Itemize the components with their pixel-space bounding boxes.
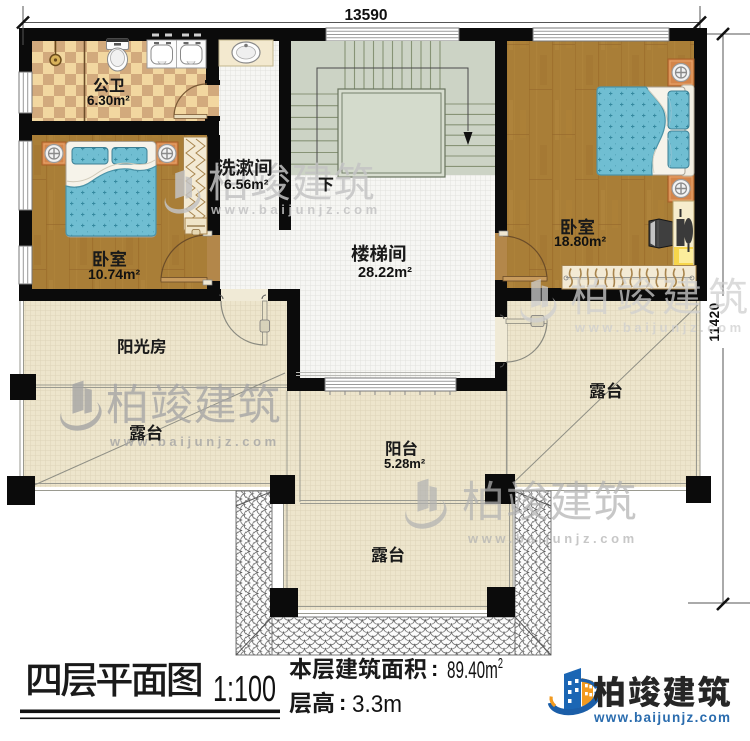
svg-text:10.74m²: 10.74m²	[88, 266, 140, 282]
svg-text:6.30m²: 6.30m²	[87, 93, 130, 108]
svg-text:www.baijunjz.com: www.baijunjz.com	[593, 710, 731, 725]
svg-text::: :	[431, 656, 438, 681]
svg-text:18.80m²: 18.80m²	[554, 233, 606, 249]
svg-text:13590: 13590	[344, 7, 387, 24]
svg-text:www.baijunjz.com: www.baijunjz.com	[467, 531, 638, 546]
svg-text::: :	[339, 690, 346, 715]
svg-text:89.40m2: 89.40m2	[447, 656, 503, 684]
svg-text:1:100: 1:100	[213, 668, 276, 709]
svg-text:28.22m²: 28.22m²	[358, 265, 412, 281]
svg-text:www.baijunjz.com: www.baijunjz.com	[574, 320, 745, 335]
svg-text:5.28m²: 5.28m²	[384, 456, 426, 471]
svg-text:www.baijunjz.com: www.baijunjz.com	[210, 202, 381, 217]
svg-text:3.3m: 3.3m	[352, 691, 402, 718]
svg-text:6.56m²: 6.56m²	[224, 176, 269, 192]
